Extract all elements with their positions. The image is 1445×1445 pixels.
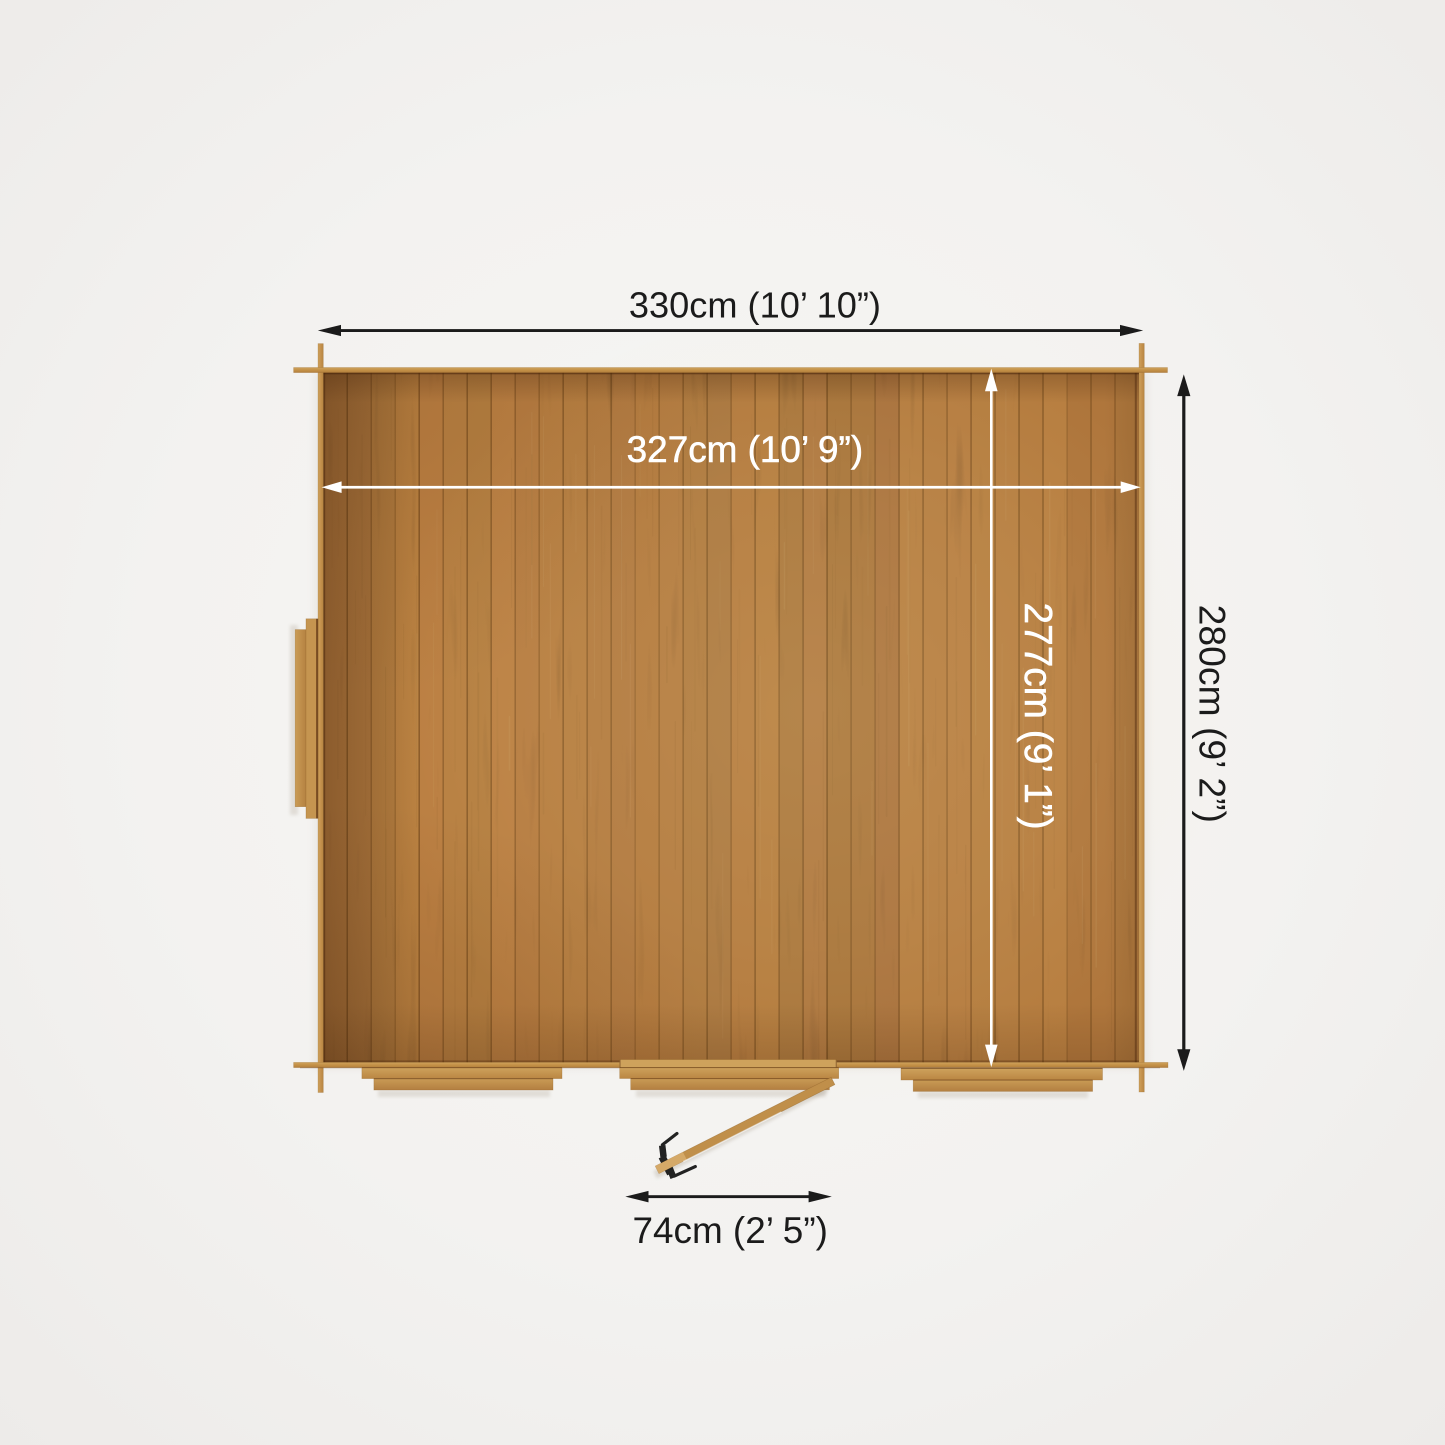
svg-text:280cm (9’ 2”): 280cm (9’ 2”) bbox=[1192, 605, 1234, 823]
svg-text:277cm (9’ 1”): 277cm (9’ 1”) bbox=[1016, 603, 1059, 830]
svg-text:330cm (10’ 10”): 330cm (10’ 10”) bbox=[629, 285, 881, 326]
svg-text:74cm (2’ 5”): 74cm (2’ 5”) bbox=[632, 1210, 827, 1251]
svg-text:327cm (10’ 9”): 327cm (10’ 9”) bbox=[627, 429, 863, 470]
